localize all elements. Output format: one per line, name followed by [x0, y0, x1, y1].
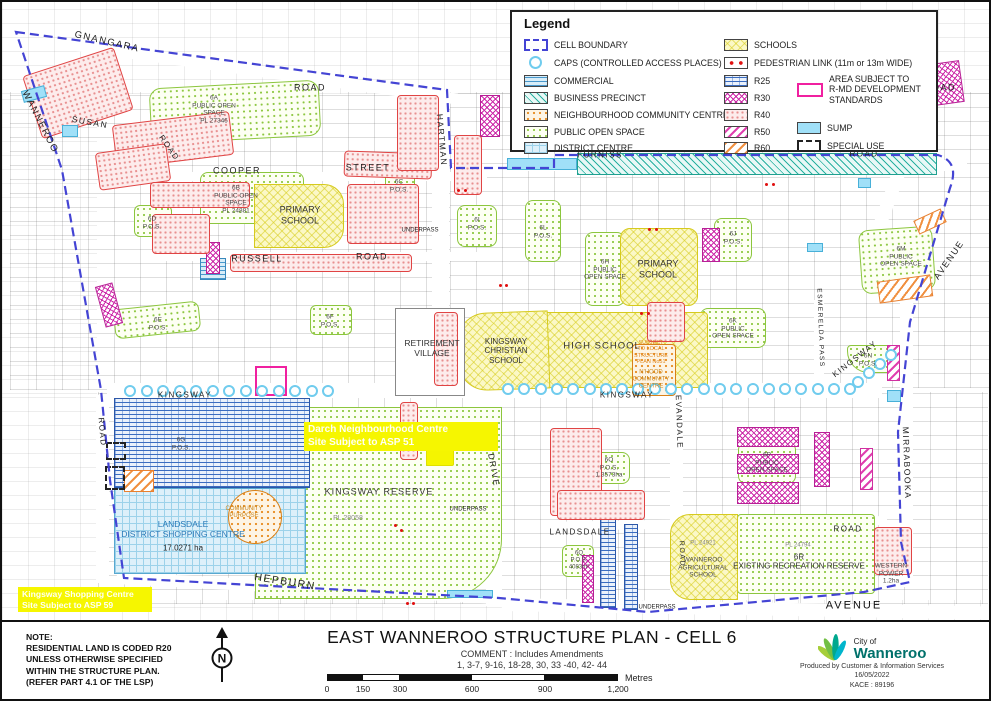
caps-circle — [240, 385, 252, 397]
pedestrian-link-dot — [464, 189, 467, 192]
legend-label: R40 — [754, 110, 770, 120]
caps-circle — [190, 385, 202, 397]
caps-circle — [812, 383, 824, 395]
special-use-swatch — [797, 140, 821, 152]
produced-by: Produced by Customer & Information Servi… — [762, 662, 982, 671]
zone-r30 — [582, 555, 594, 603]
scale-segment — [363, 674, 400, 681]
caps-circle — [141, 385, 153, 397]
zone-pos — [525, 200, 561, 262]
legend-label: SUMP — [827, 123, 852, 133]
zone-r40 — [150, 182, 250, 208]
legend-label: BUSINESS PRECINCT — [554, 93, 646, 103]
caps-circle — [779, 383, 791, 395]
legend-label: COMMERCIAL — [554, 76, 614, 86]
zone-r30 — [737, 454, 799, 474]
caps-circle — [874, 358, 886, 370]
north-arrow: N — [208, 626, 236, 691]
zone-bus — [577, 153, 937, 175]
legend-label: SPECIAL USE — [827, 141, 884, 151]
city-of-wanneroo-logo-icon — [818, 630, 852, 662]
caps-circle — [273, 385, 285, 397]
caps-circle — [256, 385, 268, 397]
legend-label: DISTRICT CENTRE — [554, 143, 633, 153]
zone-sum — [62, 125, 78, 137]
legend-label: CAPS (CONTROLLED ACCESS PLACES) — [554, 58, 722, 68]
pedestrian-link-dot — [772, 183, 775, 186]
zone-sch — [670, 514, 738, 600]
title-block: NOTE: RESIDENTIAL LAND IS CODED R20 UNLE… — [0, 622, 991, 701]
scale-segment — [545, 674, 618, 681]
caps-circle — [223, 385, 235, 397]
caps-circle — [649, 383, 661, 395]
caps-circle — [207, 385, 219, 397]
legend-label: CELL BOUNDARY — [554, 40, 628, 50]
zone-pos — [457, 205, 497, 247]
legend-label: PUBLIC OPEN SPACE — [554, 127, 645, 137]
caps-circle — [763, 383, 775, 395]
zone-sum — [858, 178, 871, 188]
pedestrian-link-dot — [647, 312, 650, 315]
pedestrian-link-dot — [648, 228, 651, 231]
legend-label: R60 — [754, 143, 770, 153]
zone-r30 — [702, 228, 720, 262]
zone-r40 — [347, 184, 419, 244]
caps-swatch — [529, 56, 542, 69]
zone-sum — [887, 390, 901, 402]
zone-r40 — [647, 302, 685, 342]
zone-sch — [620, 228, 698, 306]
sump-swatch — [797, 122, 821, 134]
caps-circle — [306, 385, 318, 397]
scale-tick: 0 — [325, 684, 330, 694]
neighbourhood-community-centre-swatch — [524, 109, 548, 121]
scale-tick: 1,200 — [607, 684, 628, 694]
zone-pos — [737, 514, 875, 594]
pedestrian-link-dot — [412, 602, 415, 605]
zone-r40 — [454, 135, 482, 195]
caps-circle — [852, 376, 864, 388]
legend: Legend CELL BOUNDARY CAPS (CONTROLLED AC… — [510, 10, 938, 152]
zone-spe — [106, 442, 126, 460]
zone-sum — [807, 243, 823, 252]
zone-r30 — [737, 427, 799, 447]
zone-pos — [700, 308, 766, 348]
rmd-area-swatch — [797, 83, 823, 97]
north-letter: N — [218, 652, 227, 666]
darch-centre-note: Darch Neighbourhood Centre Site Subject … — [304, 422, 498, 451]
pedestrian-link-dot — [394, 524, 397, 527]
pedestrian-link-dot — [406, 602, 409, 605]
district-centre-swatch — [524, 142, 548, 154]
caps-circle — [157, 385, 169, 397]
zone-pos — [310, 305, 352, 335]
zone-r60 — [124, 470, 154, 492]
plan-title: EAST WANNEROO STRUCTURE PLAN - CELL 6 — [282, 627, 782, 648]
zone-r40 — [557, 490, 645, 520]
zone-r30 — [480, 95, 500, 137]
produced-date: 16/05/2022 — [762, 671, 982, 680]
caps-circle — [698, 383, 710, 395]
zone-sch — [456, 310, 551, 391]
zone-r30 — [737, 482, 799, 504]
caps-circle — [551, 383, 563, 395]
legend-label: AREA SUBJECT TO R-MD DEVELOPMENT STANDAR… — [829, 74, 921, 104]
caps-circle — [502, 383, 514, 395]
legend-label: SCHOOLS — [754, 40, 797, 50]
zone-r40 — [152, 214, 210, 254]
legend-label: PEDESTRIAN LINK (11m or 13m WIDE) — [754, 58, 912, 68]
logo-wanneroo: Wanneroo — [854, 646, 927, 662]
note-text: NOTE: RESIDENTIAL LAND IS CODED R20 UNLE… — [26, 632, 171, 688]
zone-r25 — [624, 524, 638, 610]
pedestrian-link-dot — [640, 312, 643, 315]
credit-block: City of Wanneroo Produced by Customer & … — [762, 628, 982, 690]
caps-circle — [714, 383, 726, 395]
kingsway-shopping-centre-note: Kingsway Shopping Centre Site Subject to… — [18, 587, 152, 612]
public-open-space-swatch — [524, 126, 548, 138]
cell-boundary-swatch — [524, 39, 548, 51]
zone-sum — [507, 158, 577, 170]
parcel-fabric — [2, 94, 97, 394]
business-precinct-swatch — [524, 92, 548, 104]
caps-circle — [322, 385, 334, 397]
kace-ref: KACE : 89196 — [762, 681, 982, 690]
caps-circle — [600, 383, 612, 395]
scale-segment — [327, 674, 363, 681]
pedestrian-link-dot — [499, 284, 502, 287]
zone-r40 — [874, 527, 912, 575]
caps-circle — [535, 383, 547, 395]
pedestrian-link-dot — [505, 284, 508, 287]
caps-circle — [289, 385, 301, 397]
zone-spe — [105, 466, 125, 490]
zone-sch — [254, 184, 344, 248]
zone-ncc — [228, 490, 282, 544]
caps-circle — [665, 383, 677, 395]
legend-title: Legend — [524, 16, 570, 31]
plan-map: Darch Neighbourhood Centre Site Subject … — [0, 0, 991, 622]
r30-swatch — [724, 92, 748, 104]
zone-r40 — [230, 254, 412, 272]
zone-sum — [447, 590, 493, 598]
scale-tick: 300 — [393, 684, 407, 694]
legend-label: R25 — [754, 76, 770, 86]
caps-circle — [616, 383, 628, 395]
caps-circle — [584, 383, 596, 395]
commercial-swatch — [524, 75, 548, 87]
caps-circle — [747, 383, 759, 395]
pedestrian-link-dot — [655, 228, 658, 231]
schools-swatch — [724, 39, 748, 51]
zone-r40 — [397, 95, 439, 171]
r40-swatch — [724, 109, 748, 121]
zone-r50 — [860, 448, 873, 490]
r50-swatch — [724, 126, 748, 138]
comment-line-2: 1, 3-7, 9-16, 18-28, 30, 33 -40, 42- 44 — [282, 660, 782, 670]
comment-line-1: COMMENT : Includes Amendments — [282, 649, 782, 659]
scale-tick: 900 — [538, 684, 552, 694]
r60-swatch — [724, 142, 748, 154]
scale-unit: Metres — [625, 673, 653, 683]
zone-r30 — [814, 432, 830, 487]
caps-circle — [124, 385, 136, 397]
pedestrian-link-dot — [765, 183, 768, 186]
scale-segment — [400, 674, 472, 681]
pedestrian-link-swatch — [724, 57, 748, 69]
zone-r40 — [434, 312, 458, 386]
legend-label: NEIGHBOURHOOD COMMUNITY CENTRE — [554, 110, 729, 120]
pedestrian-link-dot — [400, 529, 403, 532]
pedestrian-link-dot — [457, 189, 460, 192]
r25-swatch — [724, 75, 748, 87]
caps-circle — [828, 383, 840, 395]
scale-tick: 150 — [356, 684, 370, 694]
structure-plan-sheet: Darch Neighbourhood Centre Site Subject … — [0, 0, 991, 701]
scale-segment — [472, 674, 545, 681]
legend-label: R30 — [754, 93, 770, 103]
caps-circle — [174, 385, 186, 397]
caps-circle — [863, 367, 875, 379]
scale-tick: 600 — [465, 684, 479, 694]
caps-circle — [885, 349, 897, 361]
zone-pos — [585, 232, 625, 306]
legend-label: R50 — [754, 127, 770, 137]
